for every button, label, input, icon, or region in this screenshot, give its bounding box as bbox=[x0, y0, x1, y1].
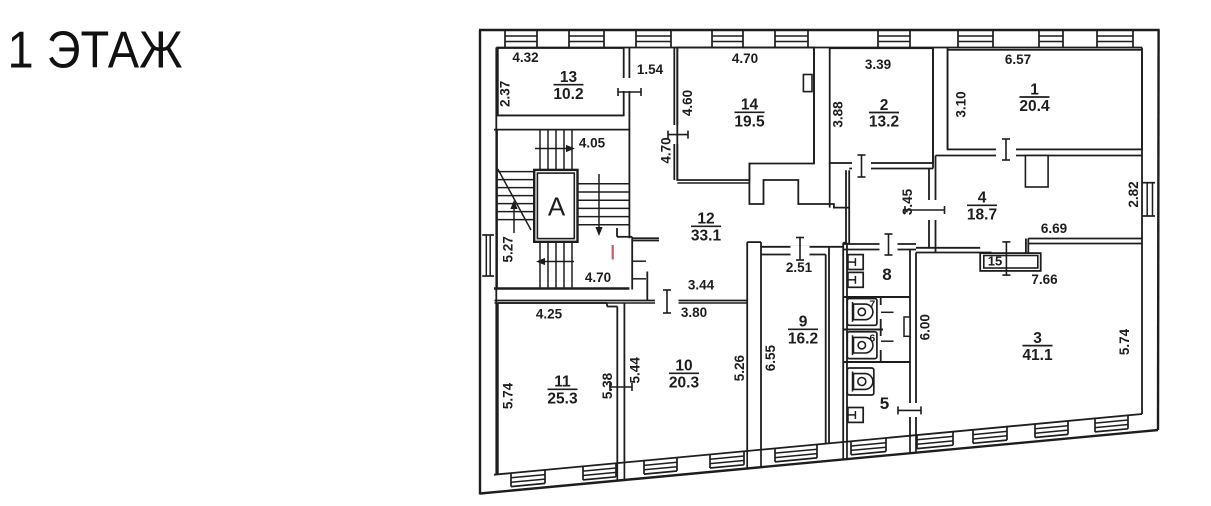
svg-text:3: 3 bbox=[1033, 330, 1042, 347]
svg-text:5.26: 5.26 bbox=[732, 354, 747, 381]
svg-text:4.70: 4.70 bbox=[732, 51, 758, 66]
svg-text:1 ЭТАЖ: 1 ЭТАЖ bbox=[8, 22, 183, 80]
svg-text:4.25: 4.25 bbox=[536, 307, 563, 322]
svg-text:8: 8 bbox=[882, 265, 891, 284]
svg-text:7.66: 7.66 bbox=[1031, 272, 1058, 287]
svg-text:5.44: 5.44 bbox=[628, 357, 643, 384]
svg-text:16.2: 16.2 bbox=[788, 331, 818, 348]
svg-text:3.88: 3.88 bbox=[831, 101, 846, 128]
svg-text:1: 1 bbox=[1030, 81, 1039, 98]
svg-text:6.00: 6.00 bbox=[917, 314, 932, 340]
svg-text:25.3: 25.3 bbox=[547, 391, 578, 408]
svg-text:15: 15 bbox=[988, 254, 1002, 269]
svg-text:1.54: 1.54 bbox=[637, 62, 664, 77]
svg-text:4.70: 4.70 bbox=[658, 137, 673, 163]
svg-text:6.69: 6.69 bbox=[1041, 221, 1067, 236]
svg-text:2.51: 2.51 bbox=[786, 260, 813, 275]
svg-text:4.70: 4.70 bbox=[585, 270, 611, 285]
svg-text:20.4: 20.4 bbox=[1019, 98, 1050, 115]
svg-text:11: 11 bbox=[554, 374, 571, 391]
svg-text:7: 7 bbox=[869, 299, 875, 311]
svg-text:4.05: 4.05 bbox=[579, 136, 606, 151]
svg-text:5.38: 5.38 bbox=[600, 372, 615, 399]
svg-text:33.1: 33.1 bbox=[691, 228, 722, 245]
svg-text:6.57: 6.57 bbox=[1005, 52, 1031, 67]
svg-text:3.80: 3.80 bbox=[681, 305, 707, 320]
svg-text:12: 12 bbox=[697, 211, 714, 228]
svg-text:3.44: 3.44 bbox=[688, 278, 715, 293]
svg-text:13: 13 bbox=[560, 69, 578, 86]
svg-text:3.45: 3.45 bbox=[900, 188, 915, 215]
svg-text:10.2: 10.2 bbox=[553, 86, 583, 103]
svg-text:2: 2 bbox=[880, 97, 889, 114]
svg-text:2.37: 2.37 bbox=[497, 81, 512, 107]
svg-text:9: 9 bbox=[799, 314, 808, 331]
svg-text:2.82: 2.82 bbox=[1126, 181, 1141, 207]
svg-text:3.39: 3.39 bbox=[865, 57, 891, 72]
svg-text:10: 10 bbox=[675, 358, 692, 375]
svg-text:3.10: 3.10 bbox=[954, 91, 969, 117]
svg-text:5.27: 5.27 bbox=[501, 236, 516, 262]
svg-text:4.60: 4.60 bbox=[680, 90, 695, 116]
svg-text:19.5: 19.5 bbox=[734, 114, 765, 131]
svg-text:5.74: 5.74 bbox=[501, 382, 516, 409]
svg-text:6.55: 6.55 bbox=[763, 344, 778, 371]
svg-text:5.74: 5.74 bbox=[1117, 328, 1132, 355]
svg-text:13.2: 13.2 bbox=[869, 114, 899, 131]
svg-text:А: А bbox=[548, 192, 566, 222]
svg-text:4.32: 4.32 bbox=[512, 50, 538, 65]
svg-text:18.7: 18.7 bbox=[967, 207, 997, 224]
svg-text:4: 4 bbox=[978, 190, 987, 207]
svg-text:41.1: 41.1 bbox=[1022, 347, 1053, 364]
svg-text:14: 14 bbox=[741, 97, 759, 114]
svg-text:20.3: 20.3 bbox=[669, 375, 700, 392]
svg-text:6: 6 bbox=[869, 333, 875, 345]
svg-text:5: 5 bbox=[880, 394, 889, 413]
